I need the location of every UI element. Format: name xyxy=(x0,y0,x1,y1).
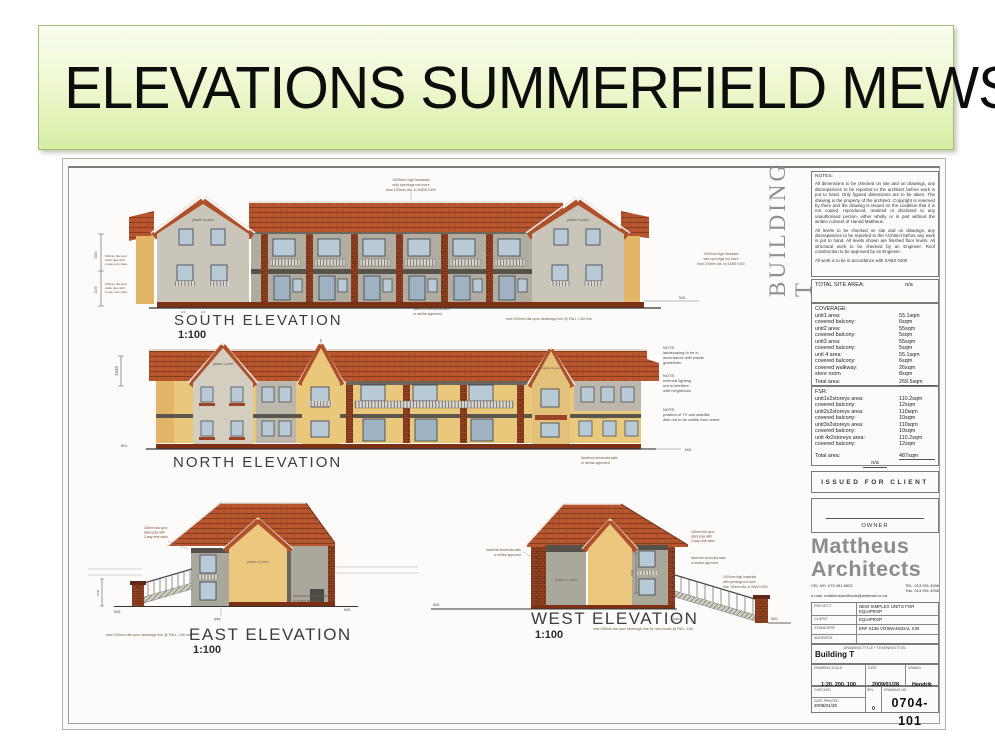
titleblock-scale-row: DRAWING SCALE 1:20, 200, 100 DATE 2009/0… xyxy=(811,664,939,686)
south-elevation-scale: 1:100 xyxy=(178,329,206,341)
north-note-tv: NOTE: position of TV and satellite dish … xyxy=(663,407,720,422)
ngl-label: NGL xyxy=(771,617,778,621)
plaster-paint-label: plaster & paint xyxy=(555,578,577,582)
ngl-label: NGL xyxy=(679,296,686,300)
west-elevation-drawing: plaster & paint xyxy=(423,489,793,664)
west-handrail-note: 1000mm high handrails with openings not … xyxy=(723,575,768,589)
west-facebrick-note-right: facebrick terracotta satin or similar ap… xyxy=(691,556,726,565)
north-building: plaster & paint xyxy=(146,339,659,449)
firm-name-line: Mattheus xyxy=(811,535,939,558)
gully-label: gully xyxy=(214,617,221,621)
west-building: plaster & paint xyxy=(525,503,688,609)
drawing-number-label: DRAWING NO xyxy=(884,688,906,692)
coverage-total-row: Total area:269.5sqm xyxy=(815,379,935,387)
east-ramp xyxy=(130,569,192,606)
south-building: plaster & paint plaster & paint xyxy=(129,196,661,308)
checked-label: CHECKED xyxy=(812,687,865,698)
note-line: facebrick terracotta satin xyxy=(486,548,521,552)
titleblock-bottom-row: CHECKED DATE PRINTED 2009/01/28 REV 0 DR… xyxy=(811,686,939,713)
south-dimensions xyxy=(98,234,104,306)
total-site-label: TOTAL SITE AREA: xyxy=(815,282,864,300)
south-facebrick-note: facebrick terracotta satin or similar ap… xyxy=(413,307,450,316)
fsr-total-value: 487sqm xyxy=(899,453,935,461)
fsr-row: covered balcony:12sqm xyxy=(815,441,935,448)
fsr-na: n/a xyxy=(863,460,887,468)
project-row-value xyxy=(857,635,938,643)
slide: ELEVATIONS SUMMERFIELD MEWS xyxy=(0,0,995,748)
plaster-paint-label: plaster & paint xyxy=(541,366,560,370)
note-line: 100mm dia upvc xyxy=(691,530,715,534)
project-row-value: ERF 6136 VOSMANSDAL X30 xyxy=(857,625,938,633)
plaster-paint-label: plaster & paint xyxy=(213,362,233,366)
note-line: facebrick terracotta satin xyxy=(293,594,328,598)
drawing-scale-label: DRAWING SCALE xyxy=(814,666,842,670)
east-elevation-scale: 1:100 xyxy=(193,644,221,656)
ngl-label: NGL xyxy=(685,448,692,452)
date-printed-value: 2009/01/28 xyxy=(814,703,863,708)
east-elevation-drawing: plaster & paint 100mm dia upvc stack pip… xyxy=(88,489,418,679)
date-label: DATE xyxy=(868,666,877,670)
titleblock-drawing-title: DRAWING TITLE * TEKENINGTITEL Building T xyxy=(811,644,939,664)
east-sewer-note: new 100mm dia upvc sewerage line @ FALL … xyxy=(106,633,192,637)
ngl-label: NGL xyxy=(433,603,440,607)
note-line: than 100mm dia. to SABS 0400 xyxy=(386,188,436,192)
slide-title: ELEVATIONS SUMMERFIELD MEWS xyxy=(39,54,995,122)
south-stackpipe-note-lower: 100mm dia upvc stack pipe with 2-way ven… xyxy=(105,282,128,294)
north-elevation-label: NORTH ELEVATION xyxy=(173,454,342,471)
architect-contact: CEL NO. 073 491 8823 TEL. 013 931 4936 F… xyxy=(811,583,939,598)
note-line: with openings not more xyxy=(392,183,429,187)
west-stackpipe-note: 100mm dia upvc stack pipe with 2-way ven… xyxy=(691,530,715,543)
plaster-paint-label: plaster & paint xyxy=(590,416,608,420)
note-line: or similar approved xyxy=(494,553,521,557)
titleblock-project-table: PROJECTNEW SIMPLEX UNITS FOR EQUIPROP CL… xyxy=(811,602,939,644)
east-elevation-label: EAST ELEVATION xyxy=(189,625,352,645)
titleblock-issued-for: ISSUED FOR CLIENT xyxy=(811,471,939,493)
note-line: with openings not more xyxy=(703,257,738,261)
date-cell: DATE 2009/01/28 xyxy=(866,665,906,685)
table-row: CLIENTEQUIPROP xyxy=(812,616,938,625)
north-note-landscaping: NOTE: landscaping to be in accordance wi… xyxy=(663,345,705,365)
drawn-cell: DRAWN Hendrik xyxy=(906,665,938,685)
issued-label: ISSUED FOR CLIENT xyxy=(821,479,929,486)
drawing-number-cell: DRAWING NO 0704-101 xyxy=(882,687,938,712)
north-elevation-drawing: plaster & paint xyxy=(111,337,811,472)
dim-label: 2500 xyxy=(94,251,98,258)
title-banner: ELEVATIONS SUMMERFIELD MEWS xyxy=(38,25,954,150)
architect-firm-name: Mattheus Architects xyxy=(811,535,939,581)
project-row-label: STAND/ERF xyxy=(812,625,857,633)
dim-label: 1540 xyxy=(96,589,100,596)
fsr-label: covered balcony: xyxy=(815,441,899,448)
east-stackpipe-note: 100mm dia upvc stack pipe with 2-way ven… xyxy=(144,526,168,539)
ngl-label: NGL xyxy=(344,608,351,612)
drawing-sheet: 1000mm high handrails with openings not … xyxy=(62,158,946,730)
building-label: BUILDING T xyxy=(765,171,801,297)
dim-label: 1540 xyxy=(114,365,119,376)
owner-signature-line xyxy=(826,518,924,519)
north-facebrick-note: facebrick terracotta satin or similar ap… xyxy=(581,456,618,465)
south-stackpipe-note-upper: 100mm dia upvc stack pipe with 2-way ven… xyxy=(105,254,128,266)
south-elevation-label: SOUTH ELEVATION xyxy=(174,312,343,329)
revision-value: 0 xyxy=(872,706,875,712)
fsr-total-row: Total area:487sqm xyxy=(815,453,935,461)
note-line: dish not to be visible from street xyxy=(663,417,720,422)
fsr-total-label: Total area: xyxy=(815,453,899,461)
note-line: facebrick terracotta satin xyxy=(691,556,726,560)
note-line: facebrick terracotta satin xyxy=(581,456,618,460)
contact-email: e-mail. mattheusarchitects@webmail.co.za xyxy=(811,593,939,598)
note-line: facebrick terracotta satin xyxy=(413,307,450,311)
total-site-value: n/a xyxy=(905,282,935,300)
owner-label: OWNER xyxy=(812,523,938,529)
drawing-number-value: 0704-101 xyxy=(892,696,929,728)
titleblock-fsr: FSR: unit1x2storeys area:110.2sqm covere… xyxy=(811,386,939,466)
note-line: 1000mm high handrails xyxy=(723,575,757,579)
coverage-value: 269.5sqm xyxy=(899,379,935,387)
ngl-label: NGL xyxy=(121,444,128,448)
drawing-title-value: Building T xyxy=(812,650,938,659)
note-line: than 100mm dia. to SABS 0400 xyxy=(723,585,768,589)
plaster-paint-label: plaster & paint xyxy=(247,560,269,564)
project-row-label: CLIENT xyxy=(812,616,857,624)
note-line: guidelines xyxy=(663,360,681,365)
note-line: 2-way vent valve xyxy=(144,535,168,539)
note-line: 1000mm high handrails xyxy=(703,252,739,256)
note-line: 2-way vent valve xyxy=(105,290,128,294)
table-row: ADDRESS xyxy=(812,635,938,643)
west-elevation-scale: 1:100 xyxy=(535,629,563,641)
project-row-label: PROJECT xyxy=(812,603,857,615)
revision-label: REV xyxy=(867,688,874,692)
coverage-row: store room8sqm xyxy=(815,371,935,378)
project-row-value: EQUIPROP xyxy=(857,616,938,624)
notes-paragraph: All work is to be in accordance with SAB… xyxy=(815,258,935,263)
note-line: stack pipe with xyxy=(691,535,712,539)
date-printed-cell: DATE PRINTED 2009/01/28 xyxy=(812,698,865,712)
titleblock-total-site-area: TOTAL SITE AREA: n/a xyxy=(811,279,939,303)
south-sewer-note: new 100mm dia upvc sewerage line @ FALL … xyxy=(506,317,592,321)
table-row: PROJECTNEW SIMPLEX UNITS FOR EQUIPROP xyxy=(812,603,938,616)
notes-paragraph: All dimensions to be checked on site and… xyxy=(815,181,935,224)
titleblock-coverage: COVERAGE: unit1 area:55.1sqm covered bal… xyxy=(811,303,939,386)
contact-cel: CEL NO. 073 491 8823 xyxy=(811,583,852,588)
note-line: or similar approved xyxy=(293,599,320,603)
titleblock-notes: NOTES: All dimensions to be checked on s… xyxy=(811,171,939,277)
fsr-value: 12sqm xyxy=(899,441,935,448)
project-row-label: ADDRESS xyxy=(812,635,857,643)
dim-label: 2500 xyxy=(630,569,634,576)
notes-title: NOTES: xyxy=(815,174,935,179)
note-line: or similar approved xyxy=(691,561,718,565)
plaster-paint-label: plaster & paint xyxy=(567,218,589,222)
north-note-lighting: NOTE: external lighting not to interfere… xyxy=(663,373,691,393)
checked-printed-cell: CHECKED DATE PRINTED 2009/01/28 xyxy=(812,687,866,712)
project-row-value: NEW SIMPLEX UNITS FOR EQUIPROP xyxy=(857,603,938,615)
note-line: or similar approved xyxy=(581,461,610,465)
notes-paragraph: All levels to be checked on site and on … xyxy=(815,228,935,255)
coverage-label: Total area: xyxy=(815,379,899,387)
note-line: 1000mm high handrails xyxy=(392,178,430,182)
table-row: STAND/ERFERF 6136 VOSMANSDAL X30 xyxy=(812,625,938,634)
firm-name-line: Architects xyxy=(811,558,939,581)
east-building: plaster & paint xyxy=(166,502,335,606)
note-line: than 100mm dia. to SABS 0400 xyxy=(697,262,745,266)
note-line: with openings not more xyxy=(723,580,756,584)
south-handrail-note-top: 1000mm high handrails with openings not … xyxy=(386,178,436,192)
note-line: 2-way vent valve xyxy=(105,262,128,266)
coverage-label: store room xyxy=(815,371,899,378)
revision-cell: REV 0 xyxy=(866,687,882,712)
drawn-label: DRAWN xyxy=(908,666,921,670)
note-line: 100mm dia upvc xyxy=(144,526,168,530)
ngl-label: NGL xyxy=(114,610,121,614)
note-line: or similar approved xyxy=(413,312,442,316)
drawing-scale-cell: DRAWING SCALE 1:20, 200, 100 xyxy=(812,665,866,685)
west-facebrick-note-left: facebrick terracotta satin or similar ap… xyxy=(486,548,521,557)
coverage-value: 8sqm xyxy=(899,371,935,378)
dim-label: 2135 xyxy=(94,286,98,293)
titleblock-owner: OWNER xyxy=(811,498,939,533)
note-line: 2-way vent valve xyxy=(691,539,715,543)
plaster-paint-label: plaster & paint xyxy=(192,218,214,222)
west-elevation-label: WEST ELEVATION xyxy=(531,609,698,629)
south-handrail-note-right: 1000mm high handrails with openings not … xyxy=(697,252,745,266)
note-line: with neighbours xyxy=(663,388,691,393)
note-line: stack pipe with xyxy=(144,531,165,535)
